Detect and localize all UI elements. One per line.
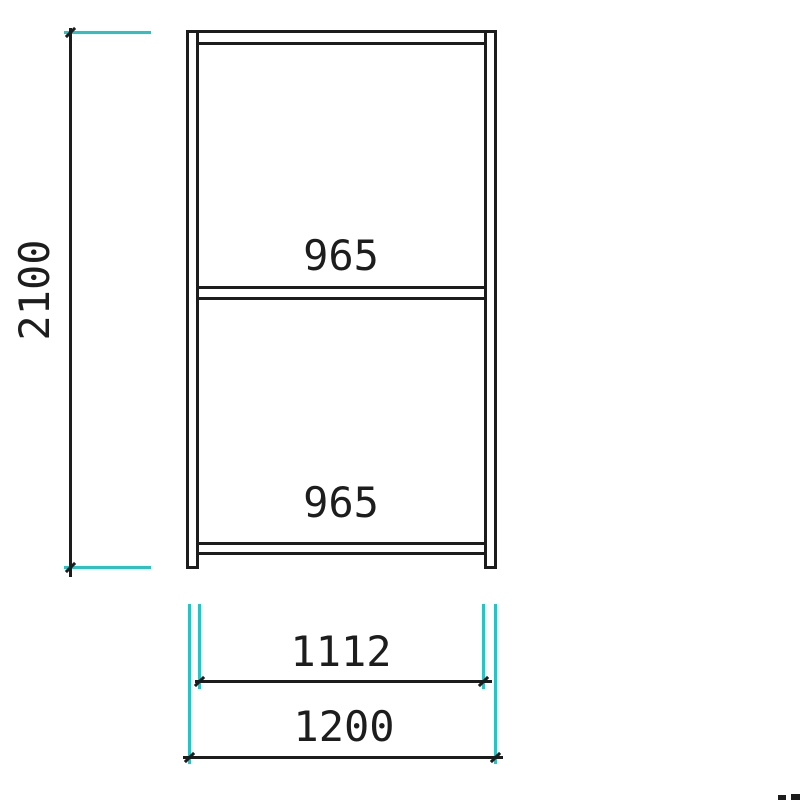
- shelf-unit-technical-drawing: 2100 965 965 1112 1200: [0, 0, 800, 800]
- height-dimension-label: 2100: [13, 210, 57, 370]
- inner-width-dimension-label: 1112: [261, 630, 421, 674]
- upper-shelf-span-label: 965: [261, 234, 421, 278]
- inner-width-dimension-line: [195, 680, 492, 683]
- middle-shelf: [196, 286, 487, 300]
- right-post: [484, 30, 497, 569]
- inner-width-extension-line-left: [198, 604, 201, 689]
- bottom-shelf: [196, 542, 487, 555]
- left-post: [186, 30, 199, 569]
- top-beam: [186, 30, 497, 45]
- height-extension-line-top: [64, 31, 151, 34]
- height-extension-line-bottom: [64, 566, 151, 569]
- outer-width-dimension-line: [183, 756, 503, 759]
- outer-width-extension-line-right: [494, 604, 497, 764]
- lower-shelf-span-label: 965: [261, 481, 421, 525]
- edge-artifact-mark: [778, 795, 786, 800]
- outer-width-extension-line-left: [188, 604, 191, 764]
- height-dimension-line: [69, 28, 72, 577]
- inner-width-extension-line-right: [482, 604, 485, 689]
- outer-width-dimension-label: 1200: [264, 705, 424, 749]
- edge-artifact-mark: [791, 794, 800, 800]
